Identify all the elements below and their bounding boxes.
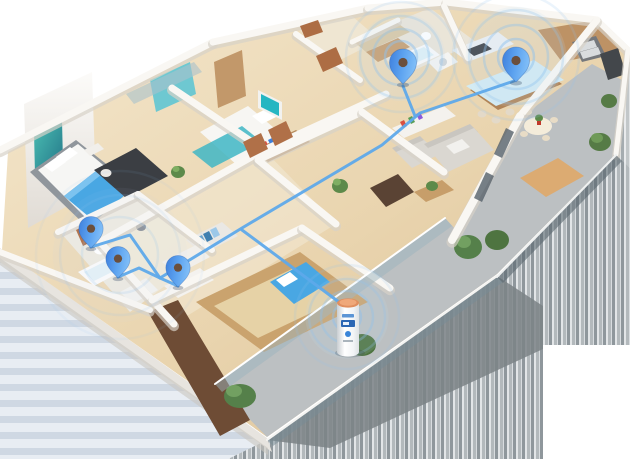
plant-highlight [591,133,603,143]
pin-hole [398,58,407,67]
pin-hole [114,255,122,263]
device-vent [343,340,353,342]
stool [506,109,515,116]
device-label [342,314,354,318]
plant-highlight [333,179,341,186]
balcony-plant [601,94,617,108]
pin-hole [174,264,182,272]
chair [542,135,550,141]
device-body [337,303,359,357]
chair [550,117,558,123]
coffee-table-plant [426,181,438,191]
floorplan-svg [0,0,630,459]
floorplan-illustration [0,0,630,459]
device-panel-text [343,322,349,325]
background-notch [543,349,630,459]
pin-hole [511,56,520,65]
chair [520,131,528,137]
plant-highlight [173,166,180,172]
balcony-plant [485,230,509,250]
device-icon [345,331,351,337]
plant-pot [537,121,541,125]
pin-hole [87,225,95,233]
device-cap-top [340,299,357,306]
